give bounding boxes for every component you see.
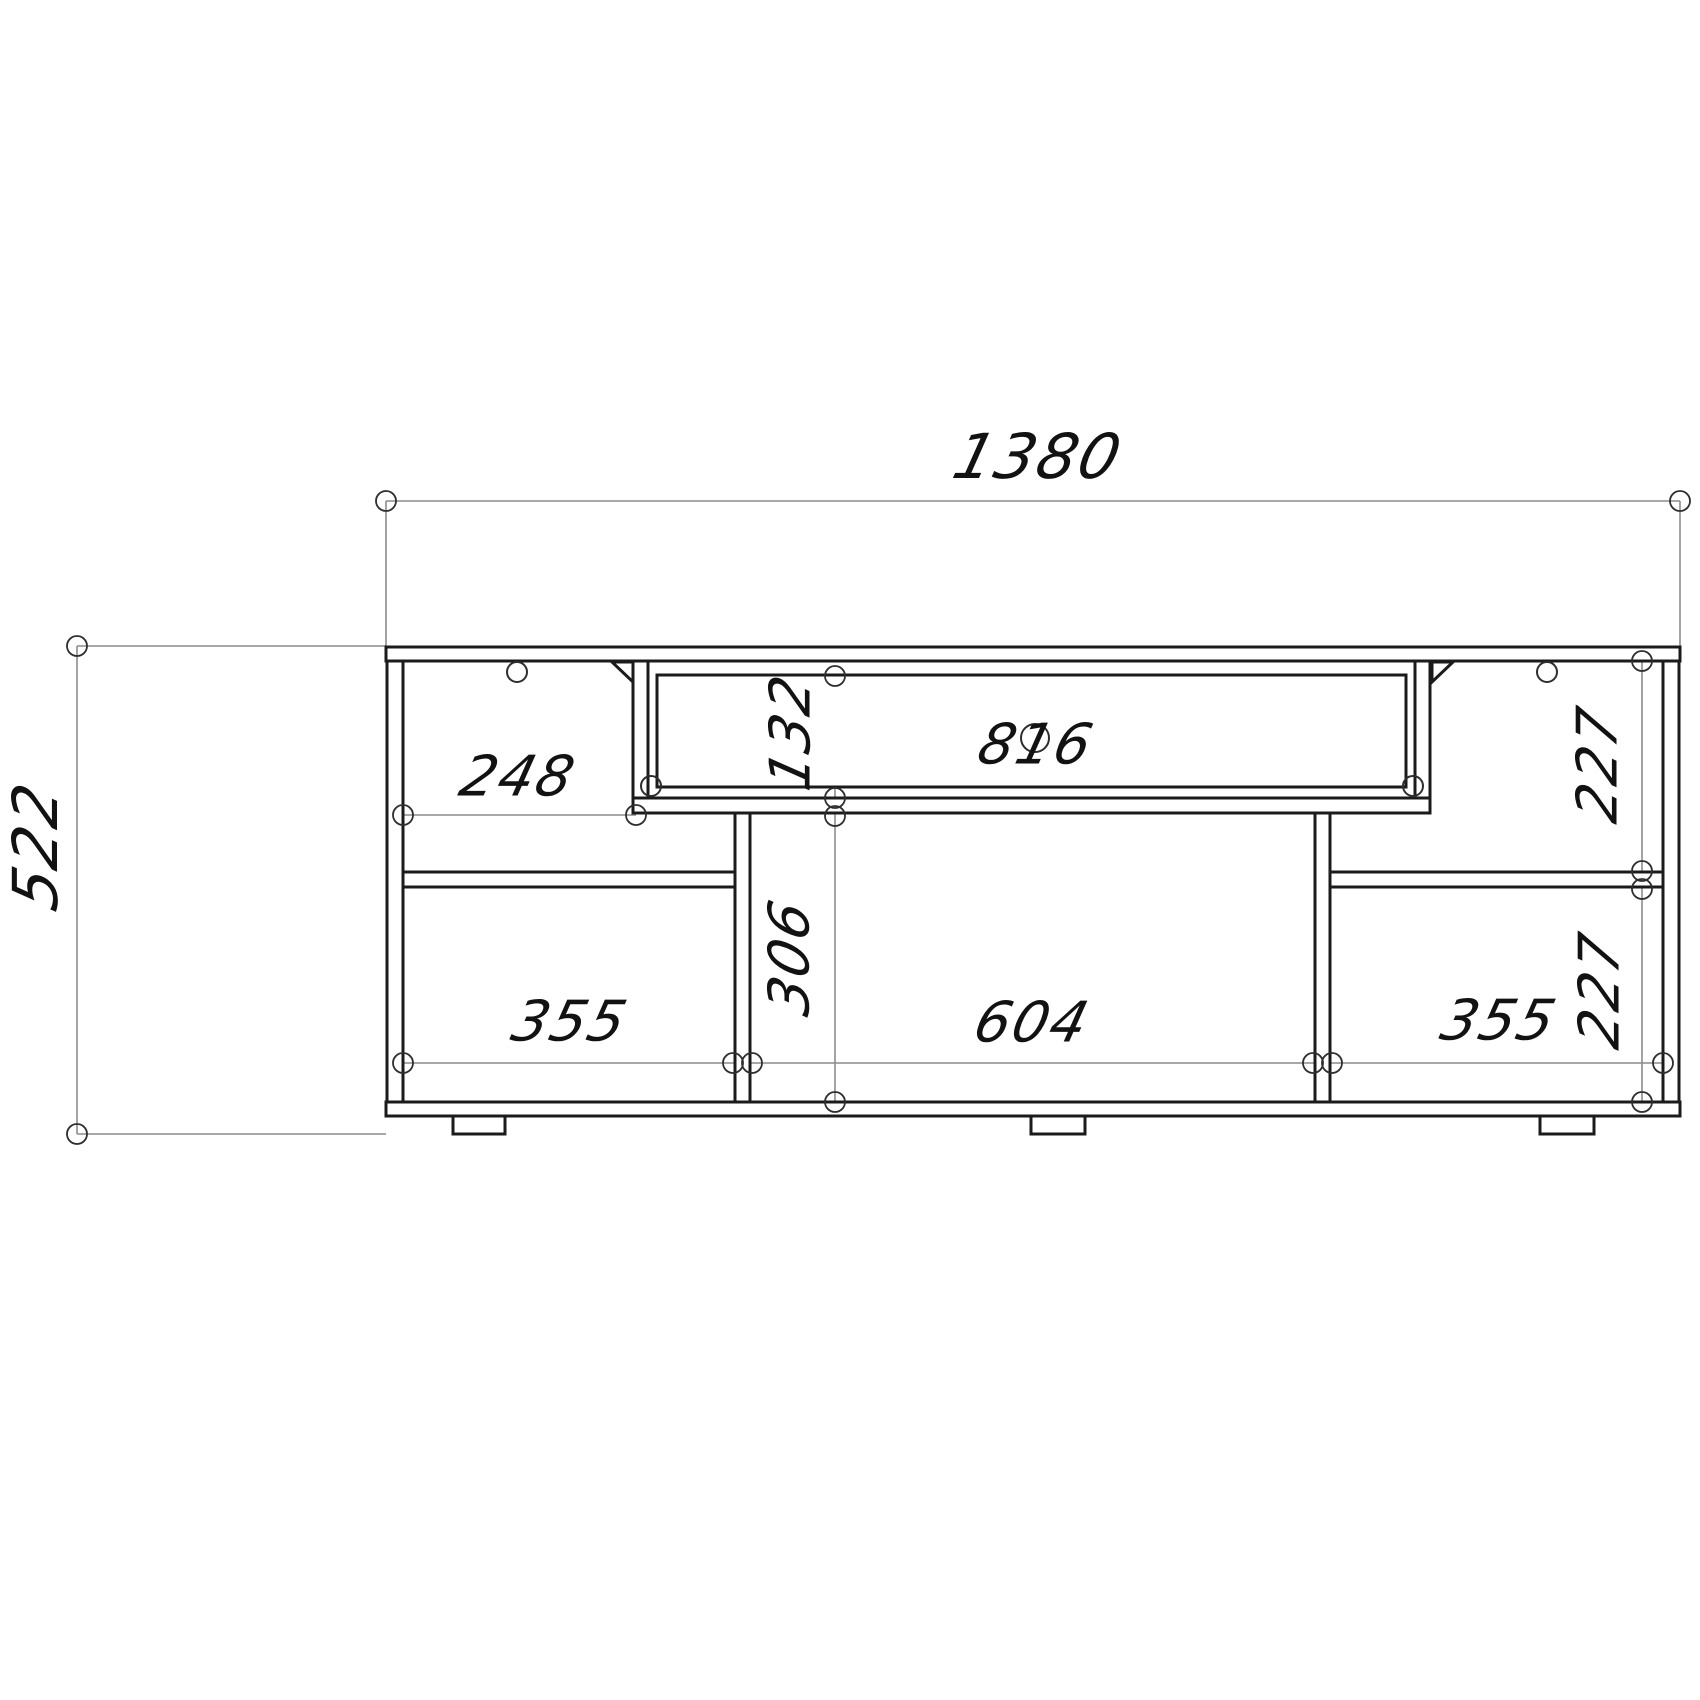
foot-right	[1540, 1116, 1594, 1134]
top-panel	[386, 647, 1680, 661]
bracket-right	[1432, 662, 1453, 682]
drawer-bay-shelf	[633, 798, 1430, 813]
dim-text-drawer-front-height: 132	[759, 667, 824, 796]
dim-text-right-lower-bay-width: 355	[1434, 989, 1563, 1054]
fastener-circle	[507, 662, 527, 682]
right-shelf	[1330, 872, 1663, 887]
dim-text-left-lower-bay-width: 355	[505, 990, 634, 1055]
dim-text-overall-width: 1380	[946, 421, 1130, 493]
fastener-circle	[1537, 662, 1557, 682]
dim-text-overall-height: 522	[0, 775, 72, 917]
dim-text-right-upper-bay-height: 227	[1566, 699, 1631, 828]
dim-text-center-bay-height: 306	[758, 892, 823, 1021]
bottom-panel	[386, 1102, 1680, 1116]
bracket-left	[612, 662, 633, 682]
dim-text-left-bay-width: 248	[453, 745, 582, 810]
left-shelf	[403, 872, 735, 887]
cad-drawing-canvas: 1380 522 248 132 816 227 355 306 604 355…	[0, 0, 1700, 1700]
foot-left	[453, 1116, 505, 1134]
dim-text-drawer-width: 816	[971, 713, 1100, 778]
dim-text-right-lower-bay-height: 227	[1568, 925, 1633, 1054]
right-side-panel	[1663, 661, 1679, 1102]
dim-text-center-bay-width: 604	[967, 991, 1096, 1056]
foot-middle	[1031, 1116, 1085, 1134]
left-side-panel	[387, 661, 403, 1102]
